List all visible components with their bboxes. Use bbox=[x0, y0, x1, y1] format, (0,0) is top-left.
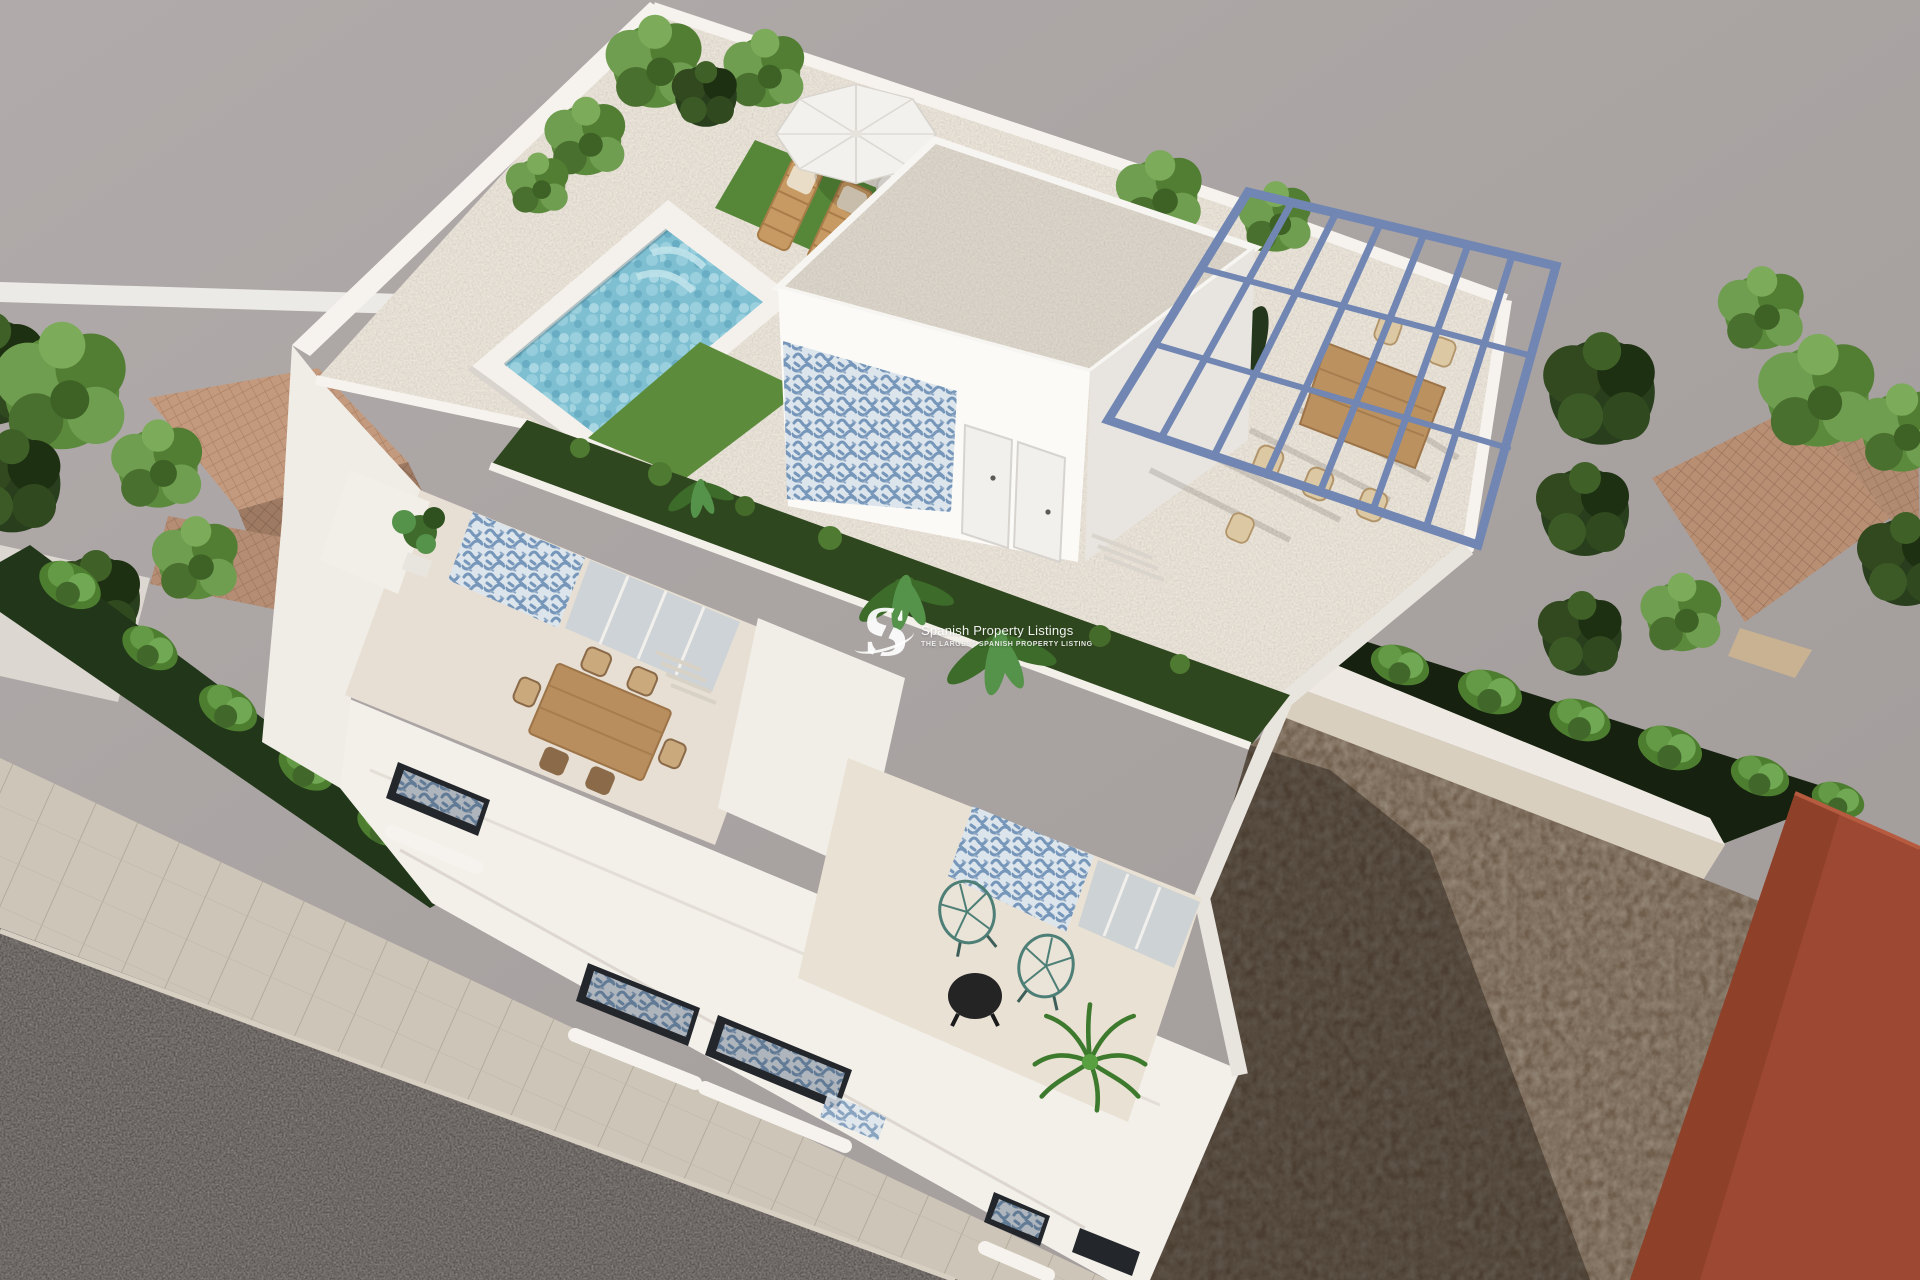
penthouse-door bbox=[962, 425, 1012, 548]
coffee-table bbox=[948, 973, 1002, 1026]
render-viewport: S Spanish Property Listings THE LARGEST … bbox=[0, 0, 1920, 1280]
penthouse-door bbox=[1014, 442, 1065, 562]
render-scene bbox=[0, 0, 1920, 1280]
